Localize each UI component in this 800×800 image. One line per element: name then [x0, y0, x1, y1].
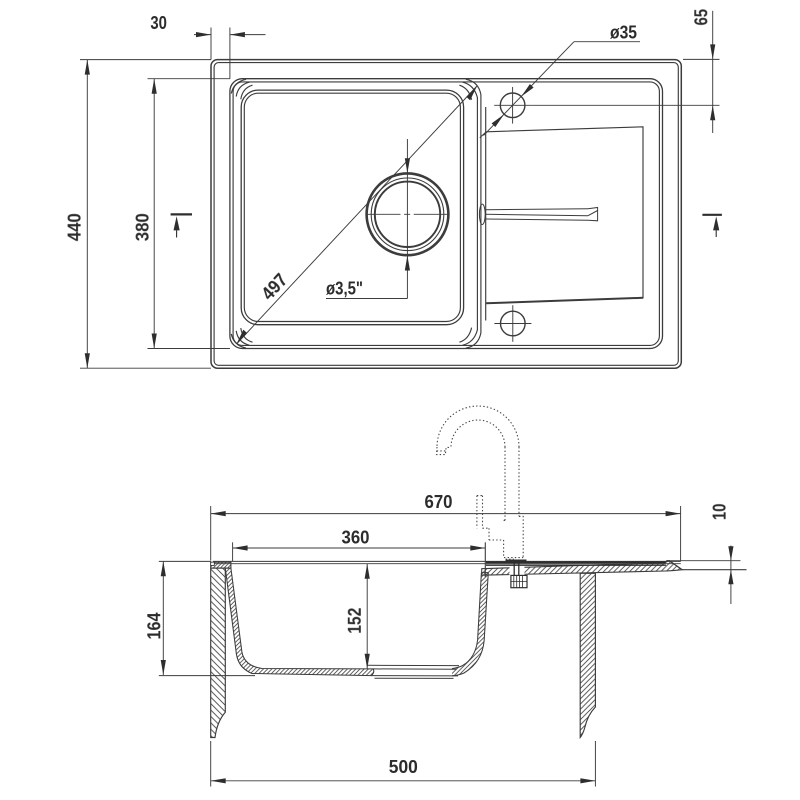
svg-text:360: 360	[342, 527, 370, 548]
svg-text:440: 440	[64, 213, 85, 241]
svg-text:670: 670	[425, 491, 453, 512]
svg-text:ø35: ø35	[610, 21, 637, 42]
svg-text:497: 497	[257, 269, 291, 304]
svg-text:ø3,5": ø3,5"	[326, 278, 363, 299]
svg-text:152: 152	[344, 608, 365, 634]
svg-text:164: 164	[143, 612, 164, 640]
svg-text:380: 380	[132, 213, 153, 241]
svg-text:10: 10	[709, 504, 730, 521]
svg-text:30: 30	[150, 12, 167, 33]
svg-text:500: 500	[389, 756, 418, 777]
svg-text:65: 65	[690, 9, 711, 26]
